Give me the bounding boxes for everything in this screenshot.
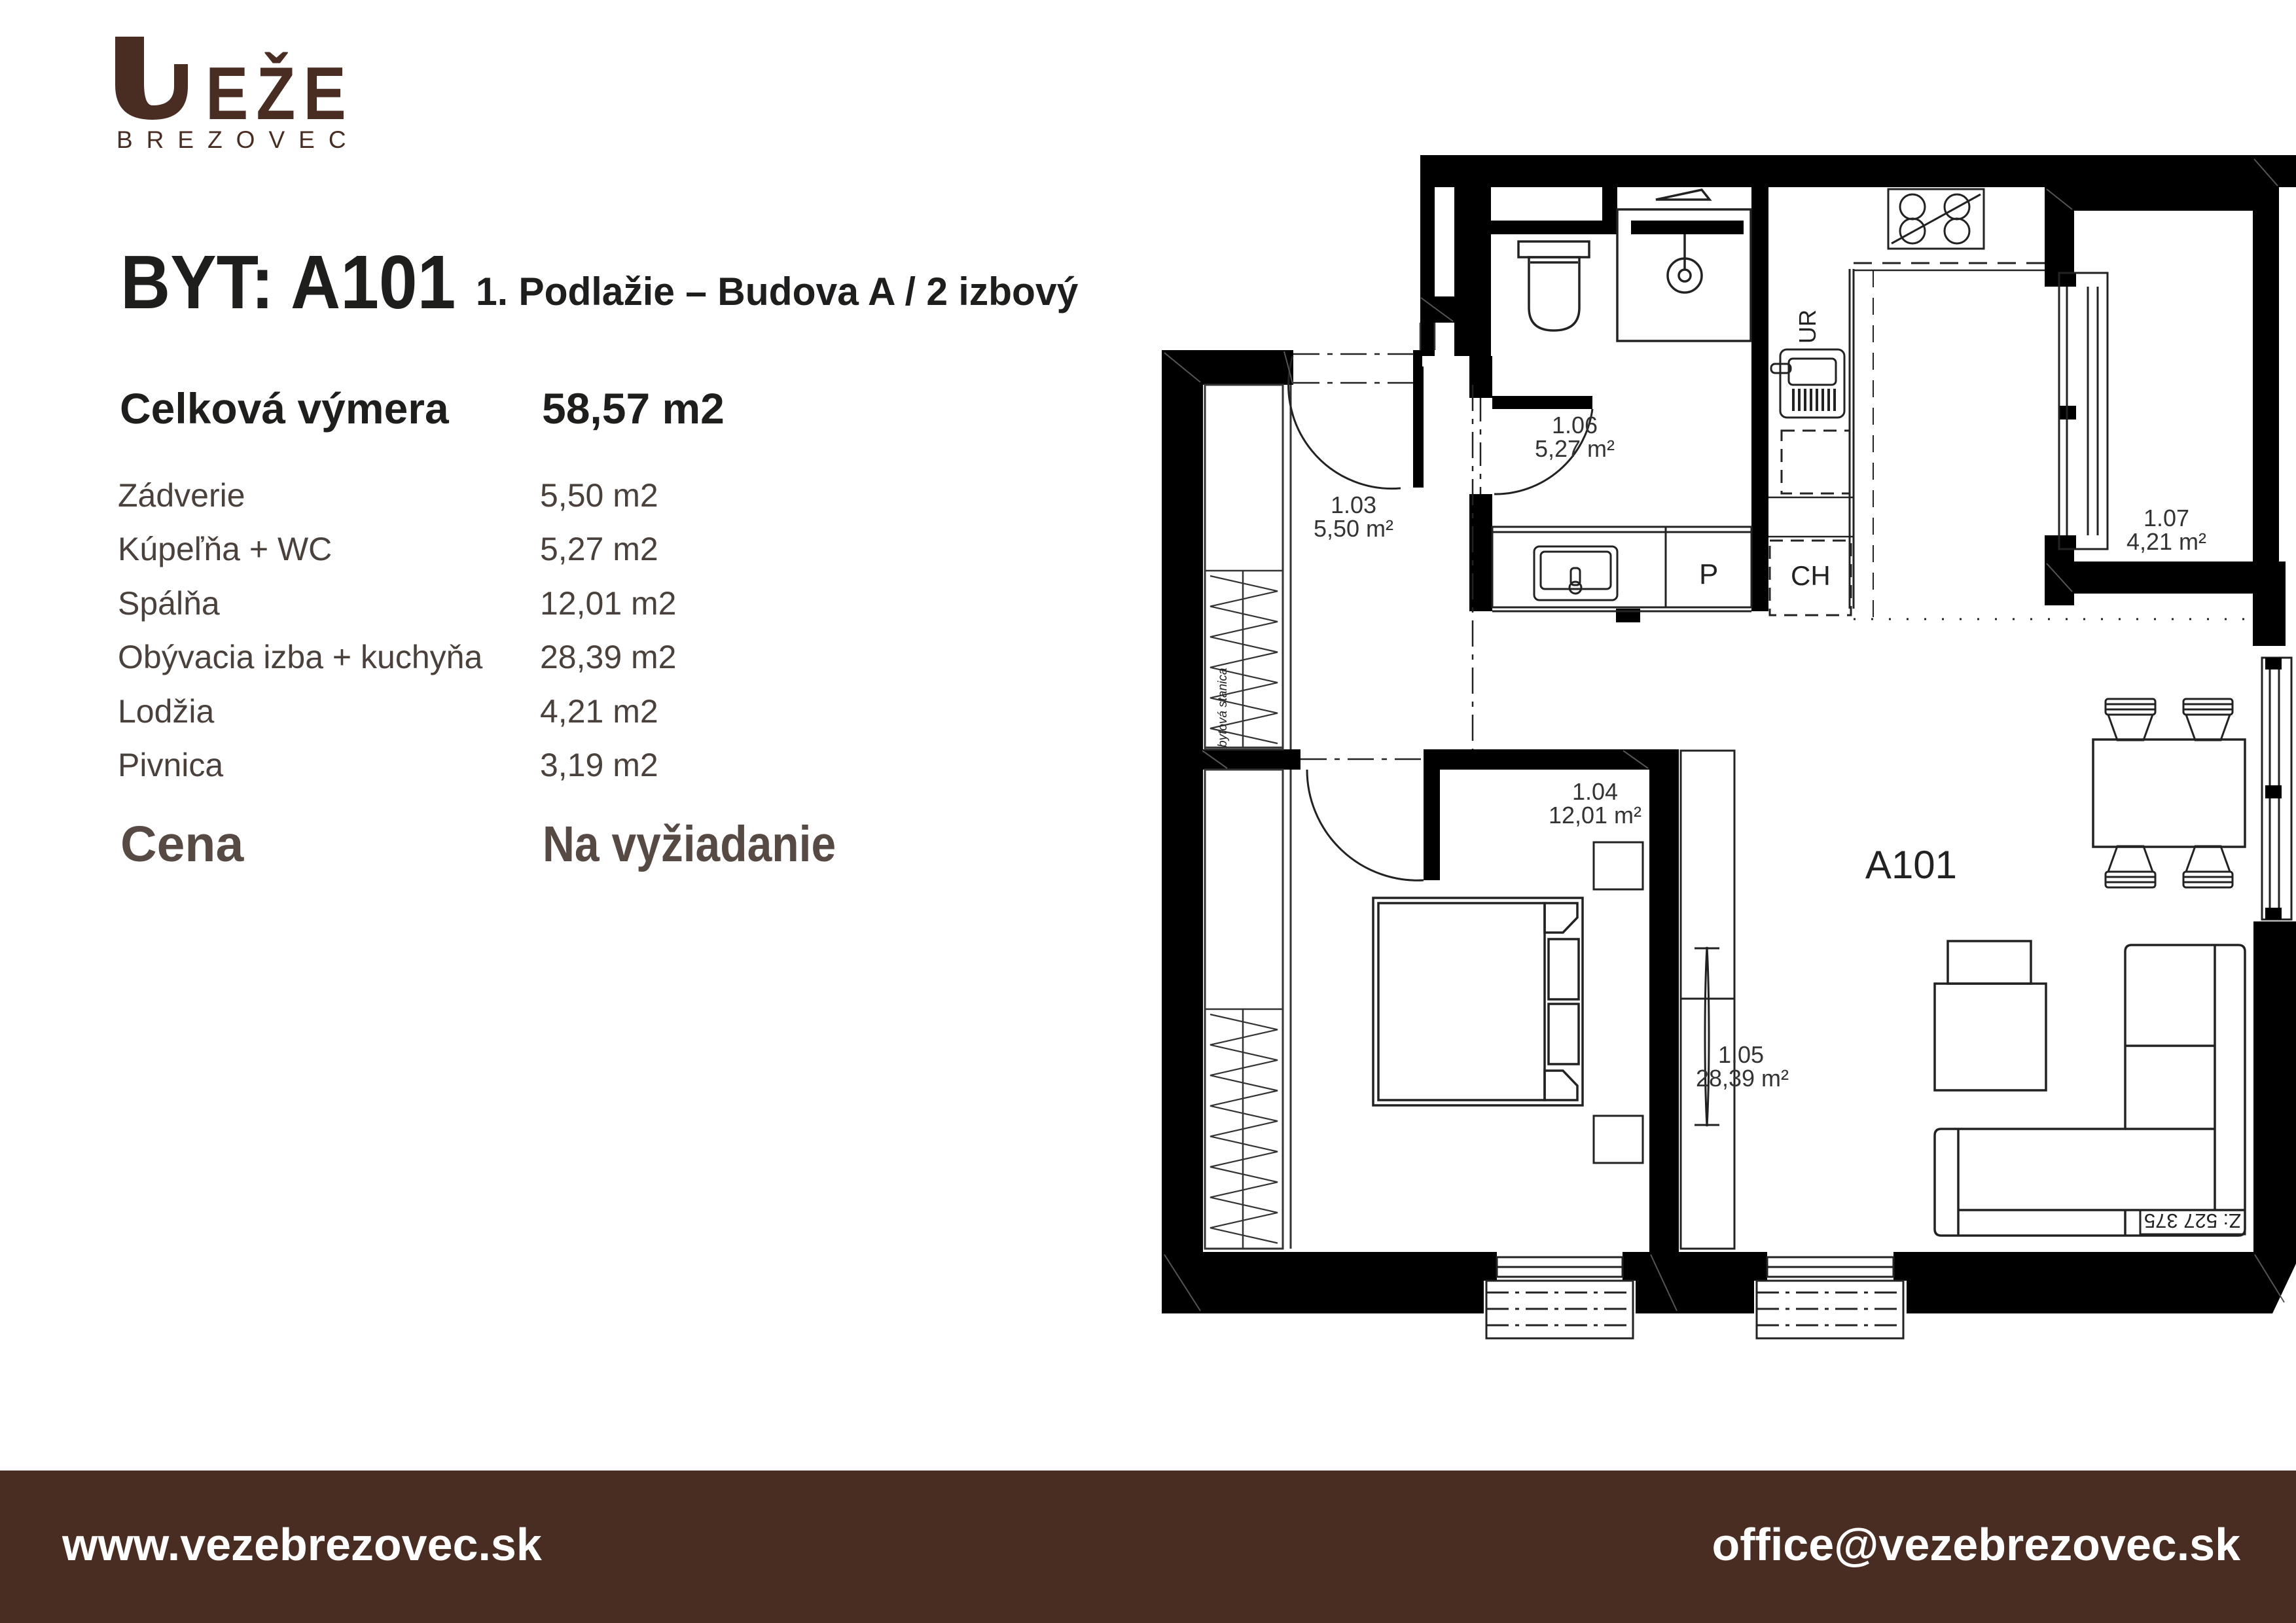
svg-text:5,27 m²: 5,27 m² bbox=[1535, 435, 1615, 462]
svg-text:P: P bbox=[1699, 558, 1718, 590]
svg-text:A101: A101 bbox=[1865, 843, 1957, 887]
svg-text:28,39 m²: 28,39 m² bbox=[1696, 1065, 1789, 1092]
svg-text:UR: UR bbox=[1794, 310, 1821, 344]
svg-text:1.04: 1.04 bbox=[1572, 778, 1618, 805]
svg-text:1.03: 1.03 bbox=[1331, 491, 1376, 518]
svg-text:1.06: 1.06 bbox=[1552, 412, 1598, 438]
svg-text:1.05: 1.05 bbox=[1718, 1041, 1764, 1068]
svg-text:Z: 527 375: Z: 527 375 bbox=[2144, 1209, 2241, 1232]
svg-text:4,21 m²: 4,21 m² bbox=[2126, 528, 2206, 555]
svg-text:12,01 m²: 12,01 m² bbox=[1549, 802, 1641, 829]
svg-text:CH: CH bbox=[1791, 560, 1831, 591]
svg-text:bytová stanica: bytová stanica bbox=[1216, 668, 1230, 747]
svg-text:5,50 m²: 5,50 m² bbox=[1314, 515, 1393, 542]
svg-text:1.07: 1.07 bbox=[2144, 505, 2189, 531]
